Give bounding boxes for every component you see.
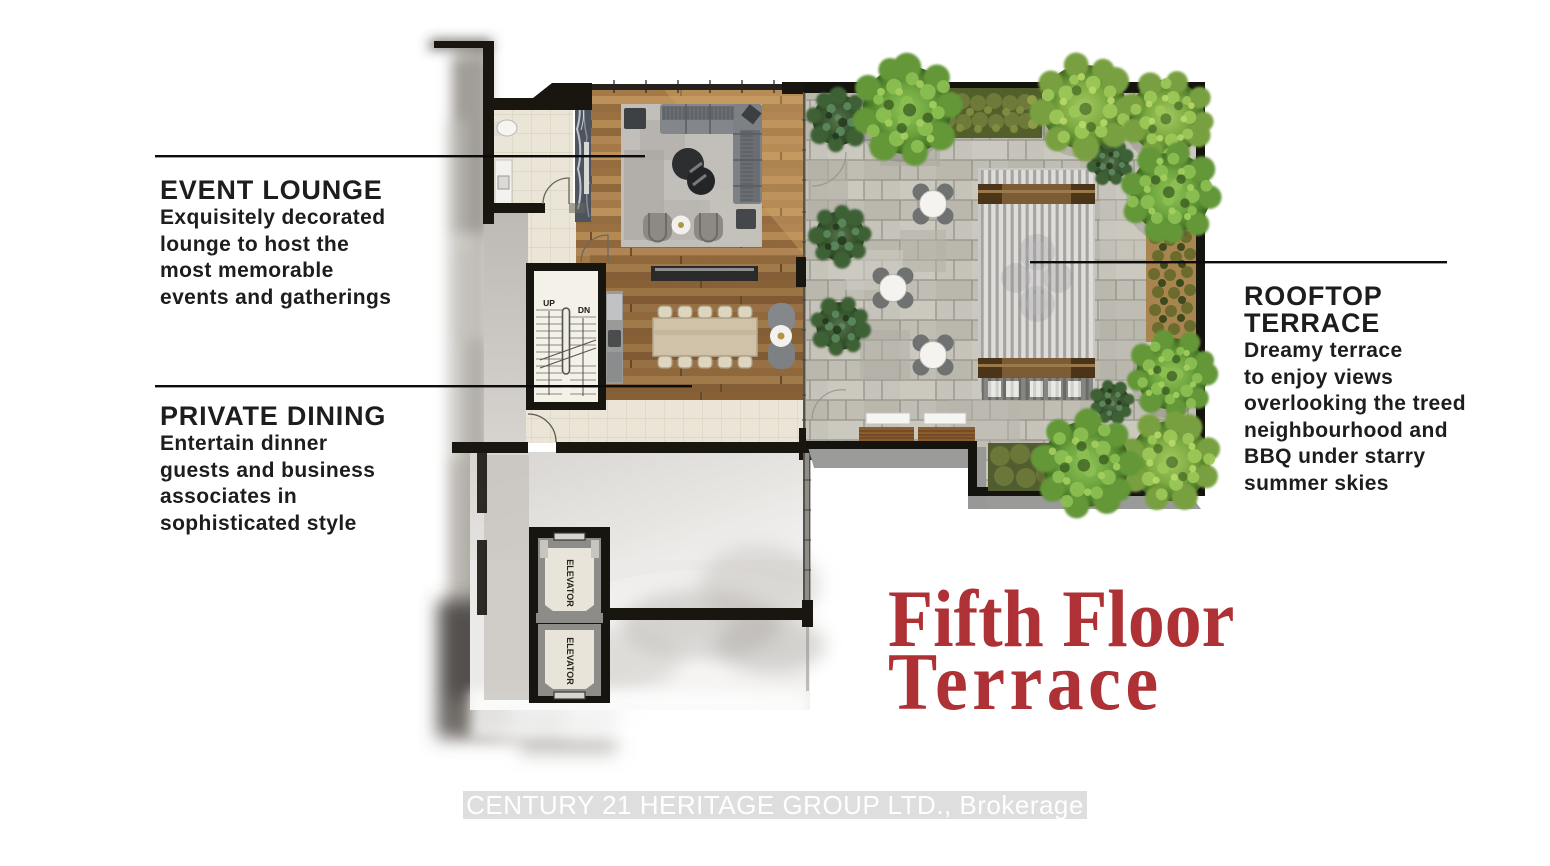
svg-text:DN: DN [578,305,590,315]
svg-text:UP: UP [543,298,555,308]
svg-text:ELEVATOR: ELEVATOR [565,637,575,685]
svg-text:ELEVATOR: ELEVATOR [565,559,575,607]
